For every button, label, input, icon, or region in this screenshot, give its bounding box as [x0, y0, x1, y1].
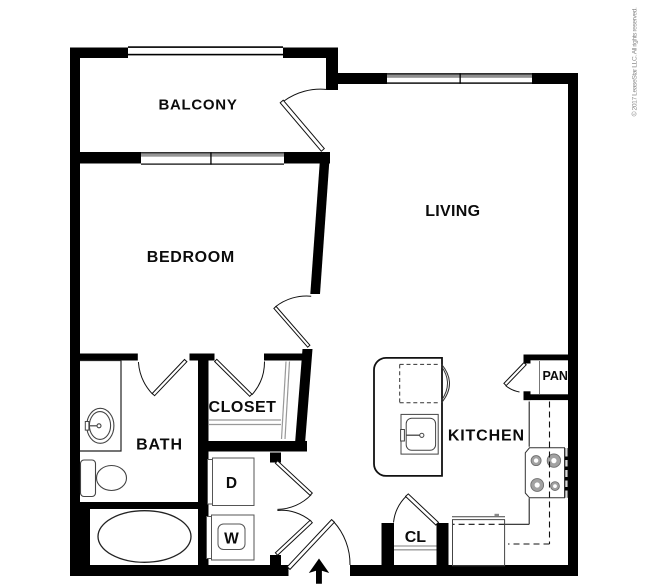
svg-text:KITCHEN: KITCHEN — [448, 428, 525, 445]
svg-text:BATH: BATH — [136, 437, 183, 454]
svg-text:CLOSET: CLOSET — [209, 399, 277, 416]
svg-text:LIVING: LIVING — [425, 203, 480, 220]
svg-text:CL: CL — [405, 529, 427, 546]
svg-text:BALCONY: BALCONY — [158, 96, 237, 113]
svg-text:© 2017 LeaseStar LLC. All righ: © 2017 LeaseStar LLC. All rights reserve… — [631, 7, 639, 116]
svg-text:BEDROOM: BEDROOM — [147, 249, 235, 266]
svg-text:W: W — [224, 530, 239, 547]
svg-text:D: D — [226, 475, 237, 492]
svg-text:PAN: PAN — [543, 369, 568, 383]
